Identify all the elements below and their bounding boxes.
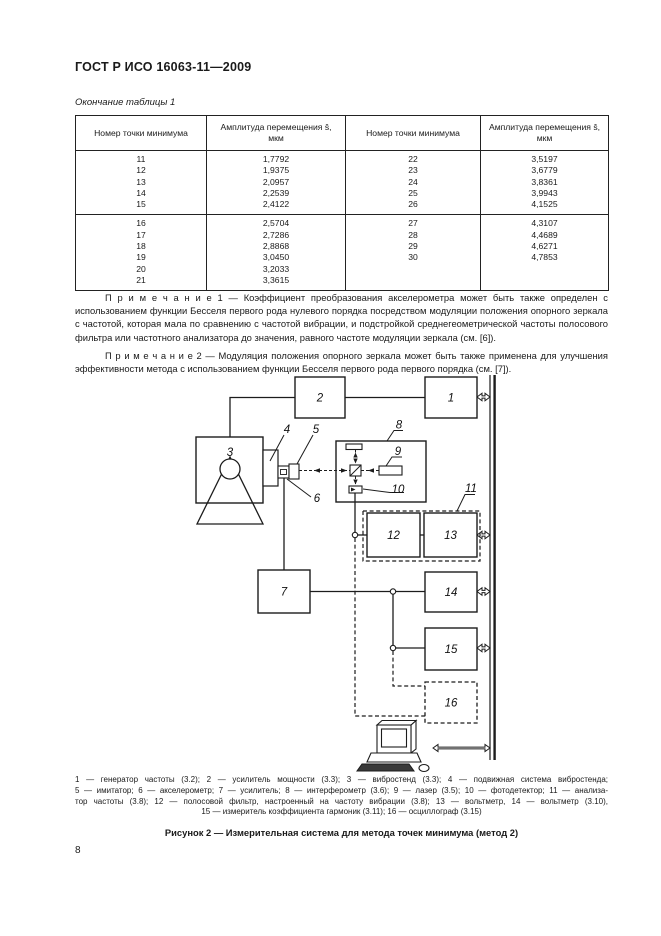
beam-arrowhead [353,459,357,464]
bus-arrow-13 [477,531,490,539]
block-label-10: 10 [392,484,405,496]
block-label-1: 1 [448,393,454,405]
beam-arrowhead [314,468,320,473]
dashed-wire-photodetector-16 [355,538,425,716]
beam-arrowhead [368,468,374,473]
block-label-15: 15 [445,644,458,656]
block-label-14: 14 [445,587,458,599]
reference-mirror [346,444,362,450]
block-label-3: 3 [227,447,234,459]
block-label-4: 4 [284,424,290,436]
leader-line-8 [387,431,403,442]
bus-arrow-1 [477,393,490,401]
junction-dot [390,589,395,594]
leader-line-5 [297,435,313,464]
block-label-12: 12 [387,530,400,542]
computer-monitor-top [377,721,416,726]
block-label-11: 11 [465,483,477,495]
block-label-5: 5 [313,424,320,436]
bus-arrow-14 [477,588,490,596]
shaker-coil [220,459,240,479]
block-5-dummy-mass [289,464,299,479]
junction-dot [352,532,357,537]
block-label-7: 7 [281,587,288,599]
block-9-laser [379,466,402,475]
page-number: 8 [75,845,81,856]
block-label-16: 16 [445,698,458,710]
block-label-8: 8 [396,420,403,432]
legend-line: 5 — имитатор; 6 — акселерометр; 7 — усил… [75,786,608,797]
figure-caption: Рисунок 2 — Измерительная система для ме… [75,827,608,838]
leader-line-6 [287,479,311,497]
block-label-2: 2 [316,393,324,405]
block-4-moving-element [263,450,278,486]
bus-arrow-computer [433,745,490,752]
accelerometer-detail [281,470,287,475]
computer-monitor-side [411,721,416,754]
dashed-wire-junction-16 [393,651,425,686]
legend-line: 15 — измеритель коэффициента гармоник (3… [75,807,608,818]
beam-arrowhead [353,453,357,458]
beam-arrowhead [341,468,347,473]
leader-line-9 [386,457,402,466]
computer-icon [357,721,429,772]
legend-line: тор частоты (3.8); 12 — полосовой фильтр… [75,797,608,808]
junction-dot [390,645,395,650]
figure-legend: 1 — генератор частоты (3.2); 2 — усилите… [75,775,608,818]
leader-line-11 [457,495,475,512]
computer-keyboard [357,764,414,771]
block-label-13: 13 [444,530,457,542]
legend-line: 1 — генератор частоты (3.2); 2 — усилите… [75,775,608,786]
bus-arrow-15 [477,644,490,652]
computer-screen [382,729,407,747]
block-label-9: 9 [395,446,402,458]
beam-arrowhead [353,480,357,485]
block-label-6: 6 [314,493,321,505]
computer-system-unit [367,753,421,762]
computer-mouse [419,765,429,772]
